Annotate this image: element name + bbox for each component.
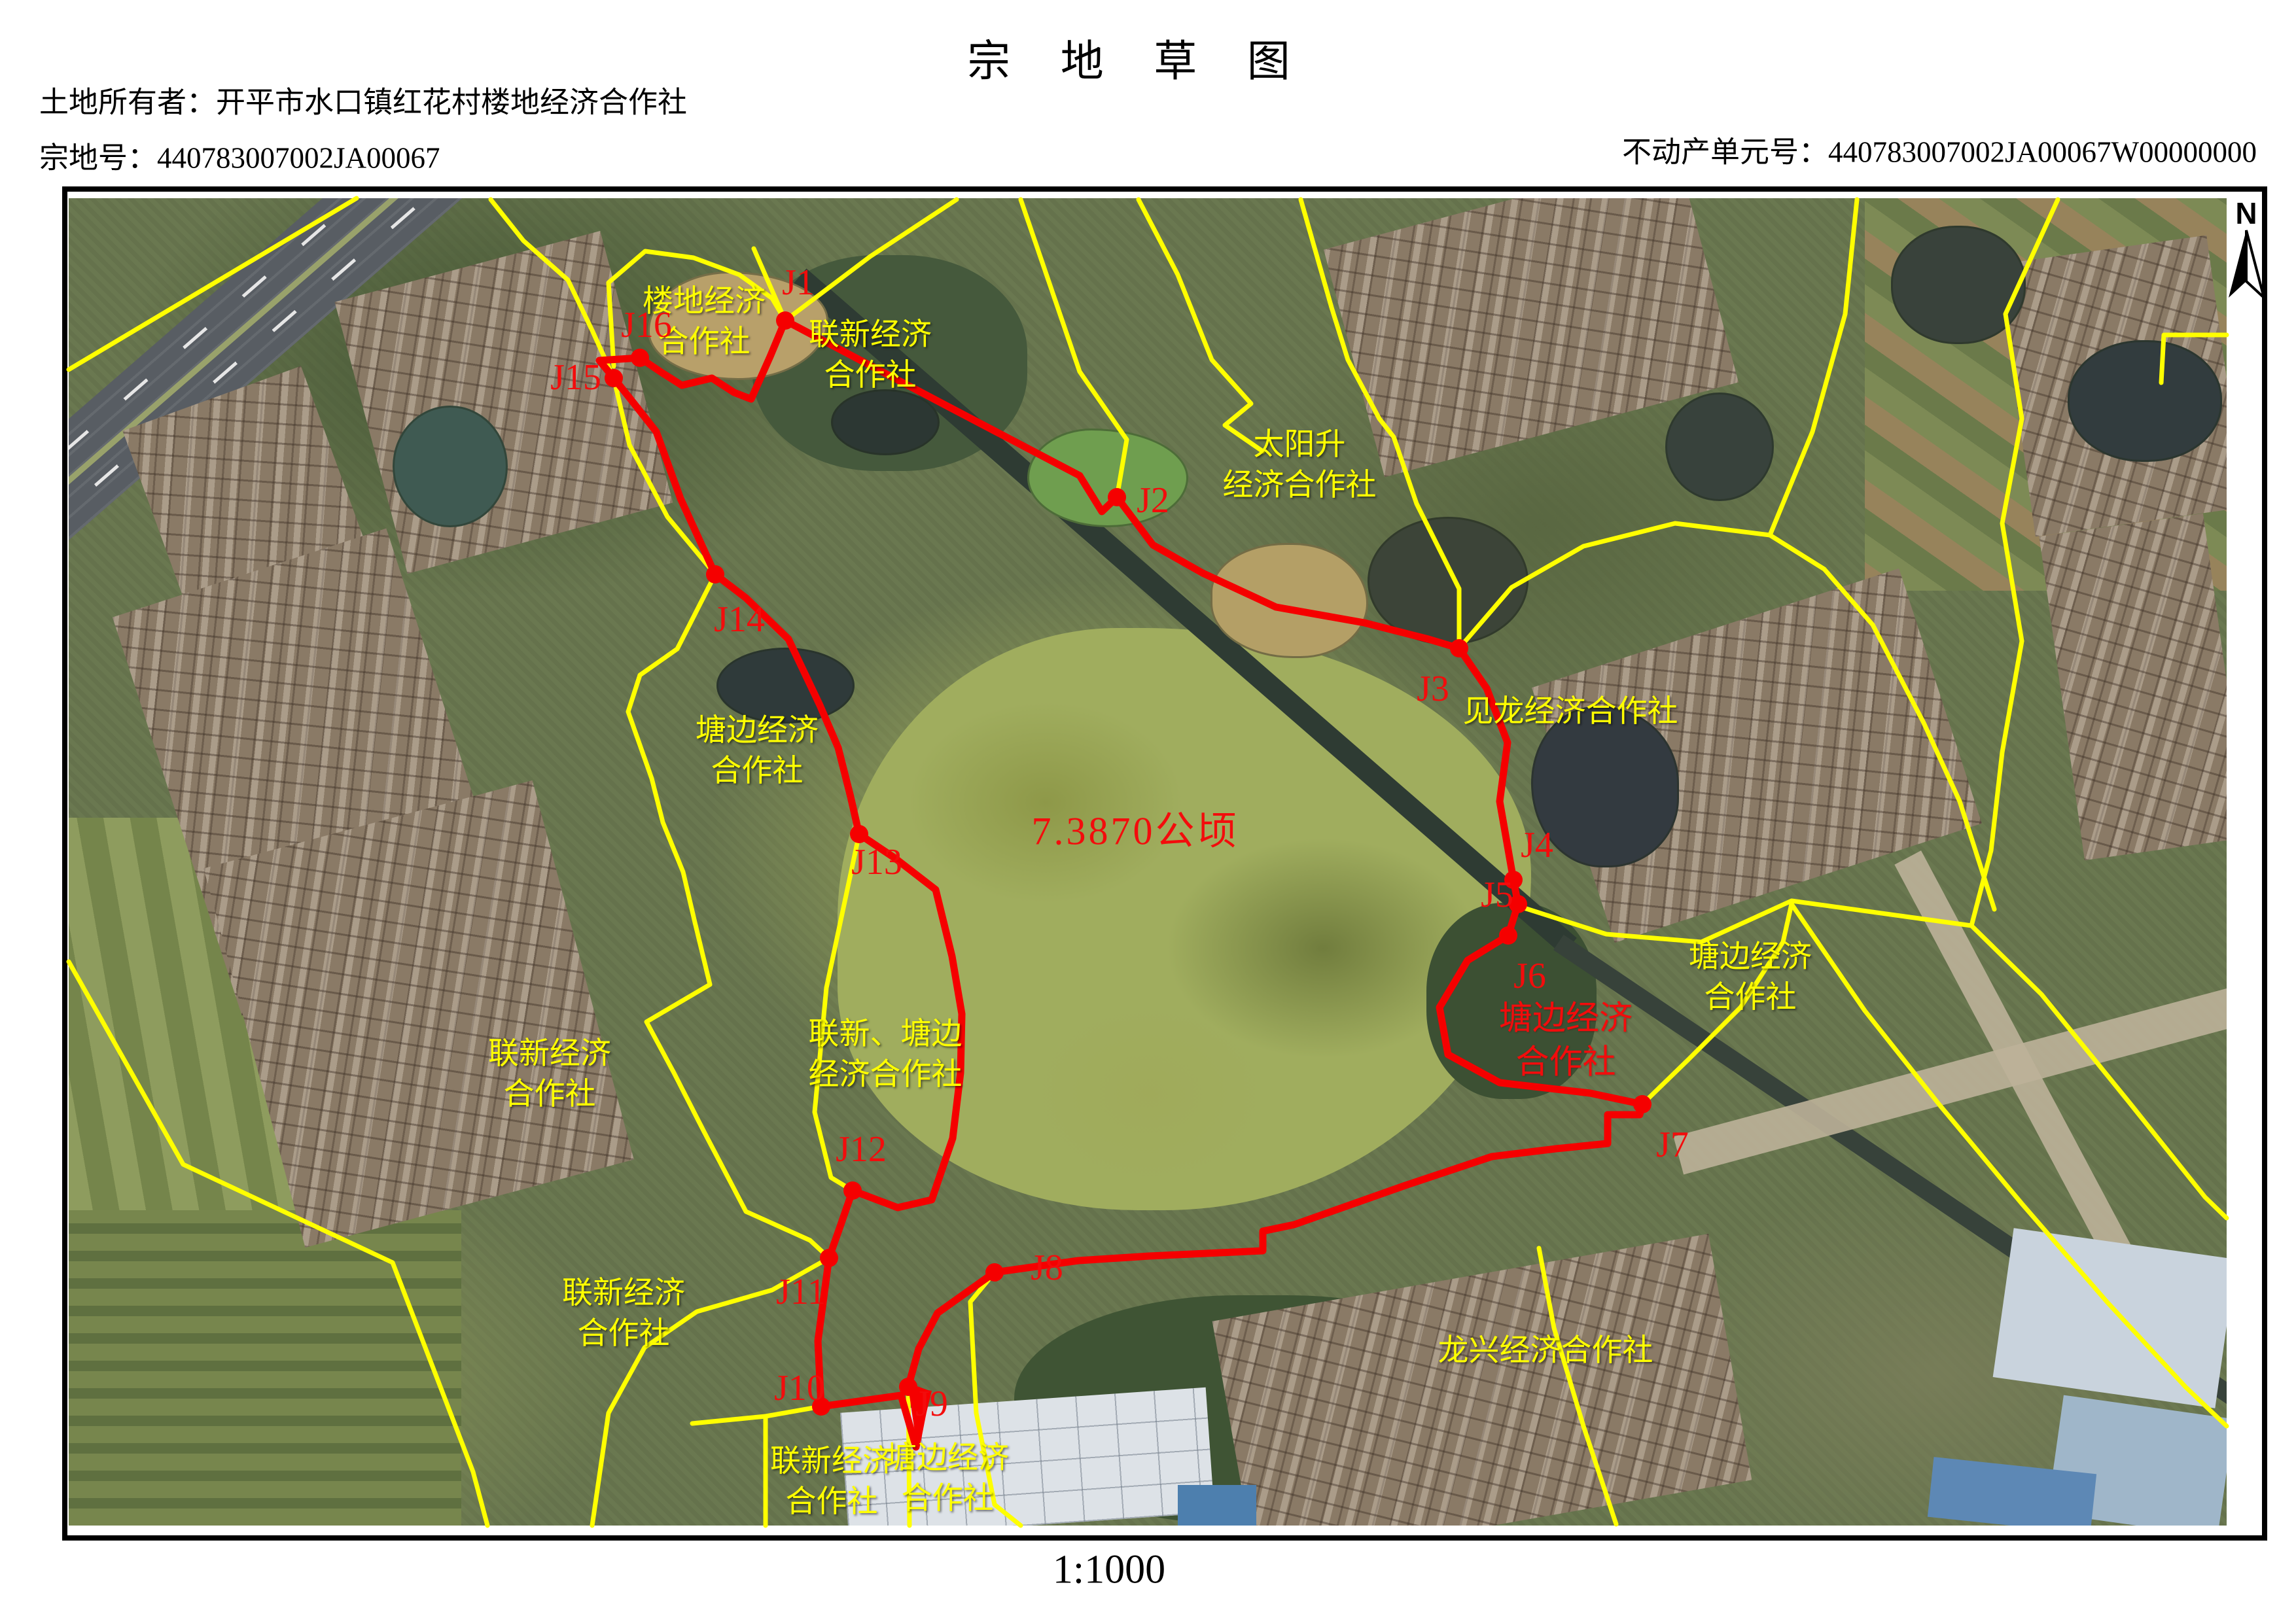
pond <box>1891 226 2026 344</box>
point-label-J6: J6 <box>1513 955 1546 997</box>
coop-label-taiyangsheng: 太阳升 经济合作社 <box>1223 425 1377 506</box>
point-label-J4: J4 <box>1521 824 1553 866</box>
estate-unit-number-line: 不动产单元号：440783007002JA00067W00000000 <box>1622 128 2257 171</box>
point-label-J3: J3 <box>1417 668 1449 710</box>
point-label-J9: J9 <box>915 1383 948 1425</box>
pond <box>831 389 940 455</box>
land-owner-line: 土地所有者：开平市水口镇红花村楼地经济合作社 <box>39 79 687 121</box>
coop-label-tangbian-red: 塘边经济 合作社 <box>1499 998 1633 1086</box>
parcel-area-label: 7.3870公顷 <box>1032 799 1239 856</box>
village-cluster <box>2039 514 2227 860</box>
coop-label-lianxin-southwest: 联新经济 合作社 <box>562 1273 685 1354</box>
parcel-meadow <box>838 628 1531 1210</box>
point-label-J11: J11 <box>776 1271 826 1313</box>
farm-fields-bottom-left <box>69 1210 461 1526</box>
warehouse-roof <box>1993 1228 2227 1408</box>
point-label-J12: J12 <box>836 1128 887 1170</box>
north-label: N <box>2235 196 2257 231</box>
pond <box>1210 543 1368 658</box>
village-cluster <box>335 231 673 574</box>
aerial-photo <box>69 198 2227 1526</box>
pond <box>1368 517 1528 645</box>
blue-roof-building <box>1178 1485 1256 1526</box>
point-label-J14: J14 <box>714 599 765 640</box>
coop-label-jianlong: 见龙经济合作社 <box>1463 691 1678 732</box>
point-label-J10: J10 <box>774 1367 825 1409</box>
page-title: 宗 地 草 图 <box>967 26 1310 89</box>
coop-label-lianxin-top: 联新经济 合作社 <box>809 315 932 396</box>
map-scale: 1:1000 <box>1053 1547 1165 1594</box>
point-label-J15: J15 <box>550 357 601 398</box>
point-label-J13: J13 <box>851 841 902 883</box>
parcel-number-line: 宗地号：440783007002JA00067 <box>39 134 440 177</box>
point-label-J16: J16 <box>621 304 672 346</box>
point-label-J8: J8 <box>1031 1247 1063 1289</box>
point-label-J5: J5 <box>1481 874 1513 916</box>
pond <box>393 406 508 527</box>
coop-label-lianxin-bottom: 联新经济 合作社 <box>770 1441 893 1522</box>
pond <box>1665 393 1774 501</box>
village-cluster <box>1212 1234 1752 1526</box>
map-frame <box>62 186 2267 1541</box>
coop-label-lianxin-tangbian: 联新、塘边 经济合作社 <box>809 1014 963 1095</box>
pond <box>2068 340 2222 462</box>
coop-label-longxing: 龙兴经济合作社 <box>1438 1331 1653 1371</box>
coop-label-tangbian-bottom: 塘边经济 合作社 <box>886 1438 1009 1519</box>
coop-label-tangbian-east: 塘边经济 合作社 <box>1689 937 1812 1018</box>
point-label-J2: J2 <box>1137 480 1169 521</box>
parcel-sketch-page: 宗 地 草 图 土地所有者：开平市水口镇红花村楼地经济合作社 宗地号：44078… <box>0 0 2296 1623</box>
coop-label-tangbian-west: 塘边经济 合作社 <box>696 710 819 792</box>
coop-label-lianxin-west: 联新经济 合作社 <box>488 1034 611 1115</box>
point-label-J7: J7 <box>1656 1124 1689 1166</box>
point-label-J1: J1 <box>782 262 815 304</box>
